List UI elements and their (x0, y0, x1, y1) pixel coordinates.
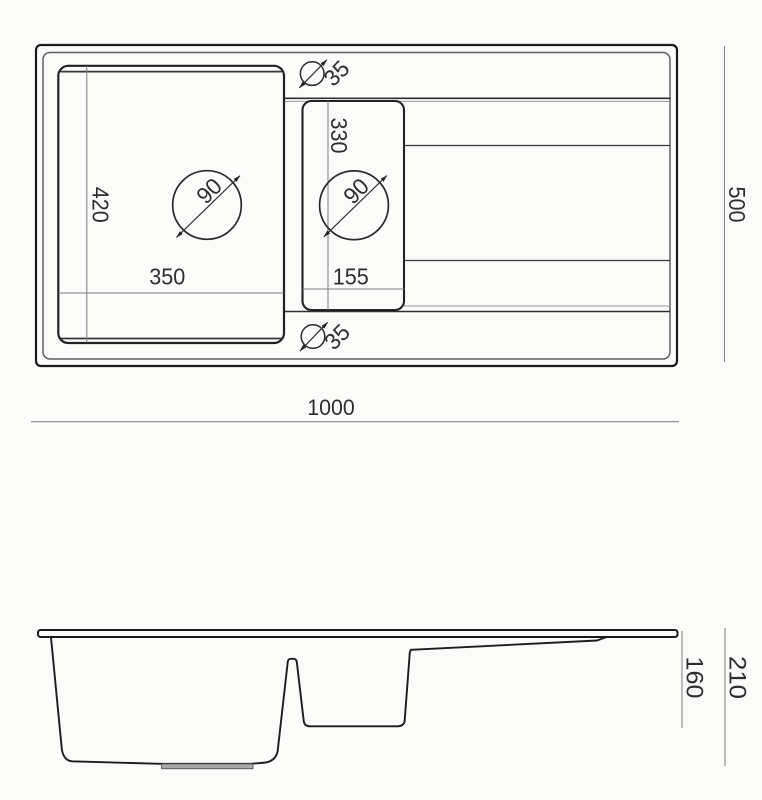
svg-text:500: 500 (724, 187, 750, 223)
svg-text:420: 420 (87, 187, 113, 223)
svg-text:155: 155 (333, 264, 369, 290)
svg-text:330: 330 (326, 118, 352, 154)
svg-text:1000: 1000 (307, 395, 355, 420)
svg-text:210: 210 (724, 656, 751, 699)
svg-text:350: 350 (149, 264, 185, 290)
svg-text:160: 160 (681, 657, 708, 699)
